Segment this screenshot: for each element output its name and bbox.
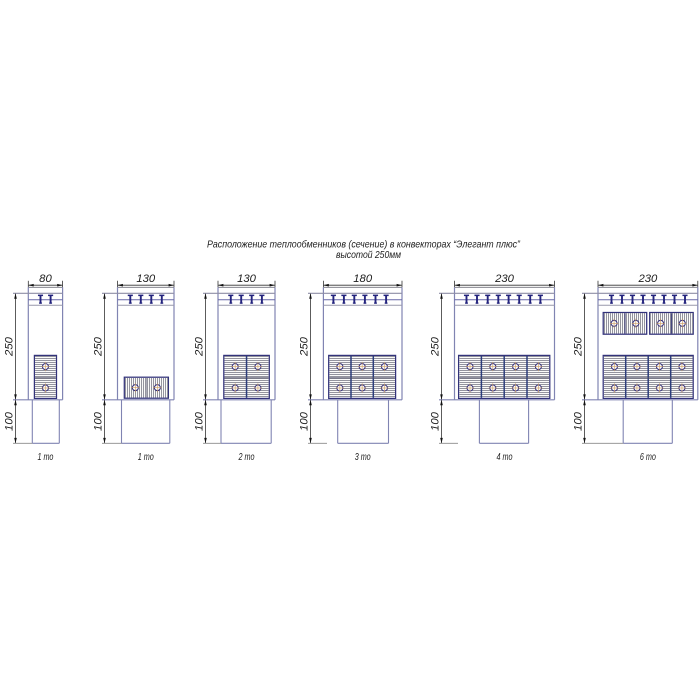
svg-text:2 то: 2 то (238, 452, 255, 463)
svg-text:250: 250 (193, 336, 205, 357)
svg-text:230: 230 (637, 273, 658, 285)
svg-text:100: 100 (193, 411, 205, 431)
svg-text:100: 100 (92, 411, 104, 431)
svg-text:1 то: 1 то (37, 452, 53, 463)
svg-text:100: 100 (298, 411, 310, 431)
svg-text:4 то: 4 то (497, 452, 513, 463)
svg-text:3 то: 3 то (355, 452, 371, 463)
svg-text:высотой 250мм: высотой 250мм (336, 250, 401, 261)
svg-text:100: 100 (429, 411, 441, 431)
svg-text:230: 230 (494, 273, 515, 285)
svg-text:250: 250 (429, 336, 441, 357)
svg-text:180: 180 (353, 273, 373, 285)
svg-text:250: 250 (572, 336, 584, 357)
svg-text:130: 130 (237, 273, 257, 285)
svg-text:6 то: 6 то (640, 452, 656, 463)
svg-text:250: 250 (92, 336, 104, 357)
svg-text:80: 80 (39, 273, 52, 285)
svg-text:130: 130 (136, 273, 156, 285)
svg-text:100: 100 (3, 411, 15, 431)
svg-text:1 то: 1 то (138, 452, 154, 463)
svg-text:100: 100 (572, 411, 584, 431)
svg-text:250: 250 (298, 336, 310, 357)
svg-text:Расположение теплообменников (: Расположение теплообменников (сечение) в… (207, 239, 521, 251)
svg-text:250: 250 (3, 336, 15, 357)
